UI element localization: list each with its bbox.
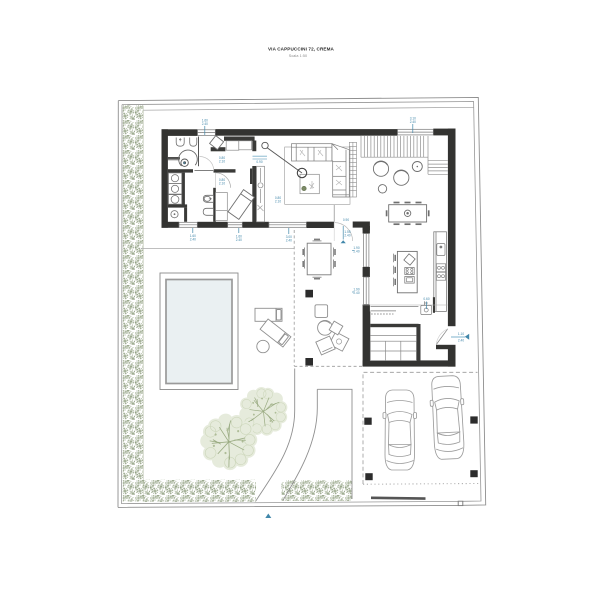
svg-text:2.40: 2.40 bbox=[344, 234, 350, 238]
svg-text:0.60: 0.60 bbox=[423, 297, 429, 301]
svg-text:2.10: 2.10 bbox=[219, 182, 225, 186]
svg-text:2.10: 2.10 bbox=[275, 200, 281, 204]
svg-text:2.40: 2.40 bbox=[410, 120, 416, 124]
svg-text:VIA CAPPUCCINI 72, CREMA: VIA CAPPUCCINI 72, CREMA bbox=[268, 47, 335, 52]
svg-text:2.40: 2.40 bbox=[202, 122, 208, 126]
svg-text:0.90: 0.90 bbox=[343, 218, 349, 222]
svg-text:2.40: 2.40 bbox=[236, 238, 242, 242]
svg-text:2.40: 2.40 bbox=[458, 339, 464, 343]
svg-text:2.40: 2.40 bbox=[190, 238, 196, 242]
svg-text:1.10: 1.10 bbox=[458, 332, 464, 336]
svg-text:2.40: 2.40 bbox=[286, 239, 292, 243]
svg-text:2.10: 2.10 bbox=[219, 160, 225, 164]
svg-text:Scala 1:50: Scala 1:50 bbox=[289, 54, 307, 58]
svg-text:0.90: 0.90 bbox=[256, 160, 262, 164]
svg-text:2.40: 2.40 bbox=[353, 291, 359, 295]
svg-text:2.40: 2.40 bbox=[353, 250, 359, 254]
